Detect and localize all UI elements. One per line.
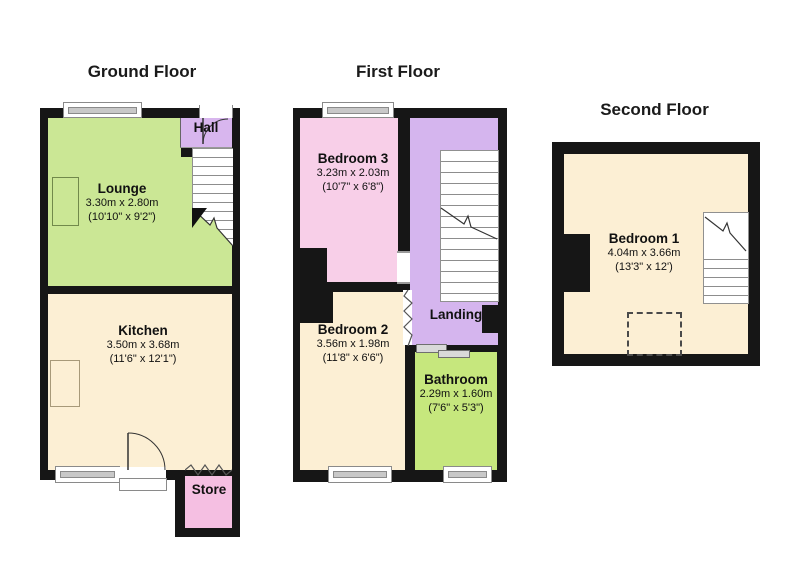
window-symbol bbox=[328, 466, 392, 483]
window-pane bbox=[327, 107, 389, 114]
window-pane bbox=[448, 471, 487, 478]
window-pane bbox=[333, 471, 387, 478]
window-symbol bbox=[443, 466, 492, 483]
window-symbol bbox=[55, 466, 120, 483]
stair-break-line bbox=[440, 202, 498, 242]
alcove-outline bbox=[52, 177, 79, 226]
chimney-breast bbox=[300, 248, 327, 282]
floorplan-canvas: Ground Floor Lounge 3.30m x 2.80m (10'10… bbox=[0, 0, 800, 582]
chimney-breast bbox=[564, 234, 590, 292]
wall-stub bbox=[482, 305, 498, 333]
zigzag-divider bbox=[403, 290, 413, 346]
dashed-area bbox=[627, 312, 682, 356]
window-symbol bbox=[63, 102, 142, 118]
window-pane bbox=[68, 107, 137, 114]
door-threshold bbox=[119, 478, 167, 491]
zigzag-divider bbox=[185, 464, 232, 477]
stair-break-line bbox=[192, 199, 233, 246]
window-pane bbox=[60, 471, 115, 478]
room-store bbox=[185, 476, 232, 528]
door-arc bbox=[201, 117, 231, 147]
wall-stub bbox=[181, 148, 192, 157]
first-floor-plan bbox=[293, 108, 507, 482]
alcove-outline bbox=[50, 360, 80, 407]
chimney-breast bbox=[300, 292, 333, 323]
second-floor-title: Second Floor bbox=[552, 100, 757, 120]
sliding-door-symbol bbox=[438, 350, 470, 358]
ground-floor-plan bbox=[40, 108, 240, 480]
store-block bbox=[175, 470, 240, 537]
door-arc bbox=[126, 431, 166, 472]
room-bathroom bbox=[415, 352, 497, 470]
stair-treads bbox=[704, 251, 748, 303]
window-symbol bbox=[322, 102, 394, 118]
first-floor-title: First Floor bbox=[296, 62, 500, 82]
stair-break-line bbox=[703, 212, 747, 256]
ground-floor-title: Ground Floor bbox=[40, 62, 244, 82]
bedroom3-door-opening bbox=[397, 251, 410, 284]
